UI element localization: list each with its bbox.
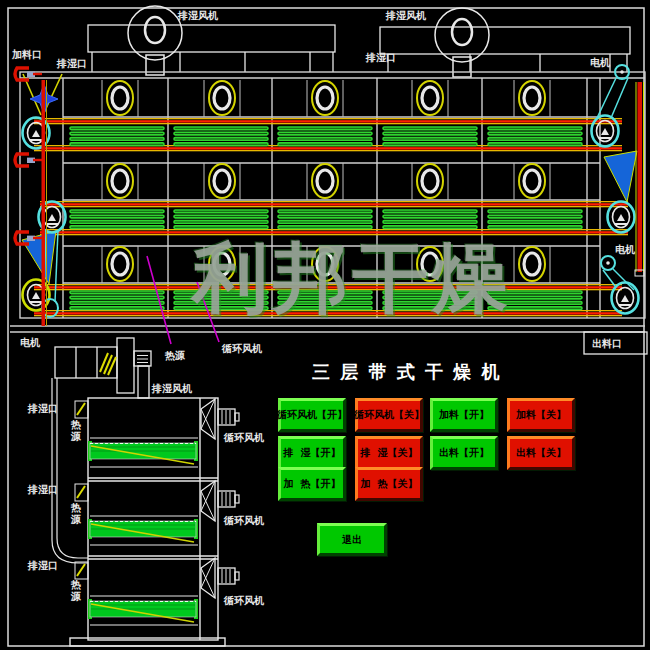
- feed-port-label: 加料口: [11, 49, 42, 60]
- side-heat-source-2b: 源: [70, 514, 81, 525]
- motor-bottom-left-label: 电机: [20, 337, 41, 348]
- side-circ-fan-label-2: 循环风机: [223, 515, 265, 526]
- motor-top-right-label: 电机: [590, 57, 611, 68]
- side-vent-port-label-1: 排湿口: [27, 403, 58, 414]
- dryer-top-view: 加料口 排湿口 排湿口 排湿风机 排湿风机 电机 电机 电机 出料口 热源 循环…: [10, 6, 647, 361]
- discharge-port-label: 出料口: [592, 338, 622, 349]
- vent-fan-left-label: 排湿风机: [177, 10, 219, 21]
- side-vent-port-label-2: 排湿口: [27, 484, 58, 495]
- feed-off-button[interactable]: 加料【关】: [507, 398, 575, 432]
- heat-source-pointer-label: 热源: [164, 350, 185, 361]
- exhaust-fan-icon-right: [435, 8, 489, 77]
- roof-duct-left: [88, 25, 335, 72]
- exhaust-fan-icon-left: [128, 6, 182, 75]
- side-belt-3: [88, 596, 198, 625]
- side-belt-1: [88, 438, 198, 467]
- side-heat-source-1b: 源: [70, 431, 81, 442]
- feed-on-button[interactable]: 加料【开】: [430, 398, 498, 432]
- exit-button[interactable]: 退出: [317, 523, 387, 556]
- dehumidify-on-button[interactable]: 排 湿【开】: [278, 436, 346, 470]
- side-vent-fan-label: 排湿风机: [151, 383, 193, 394]
- side-heat-source-3b: 源: [70, 591, 81, 602]
- side-vent-port-label-3: 排湿口: [27, 560, 58, 571]
- circulation-fan-off-button[interactable]: 循环风机【关】: [355, 398, 423, 432]
- side-heat-source-1a: 热: [70, 419, 81, 430]
- circulation-fan-icons: [107, 81, 545, 281]
- heating-on-button[interactable]: 加 热【开】: [278, 467, 346, 501]
- side-circ-fan-label-1: 循环风机: [223, 432, 265, 443]
- side-heat-source-3a: 热: [70, 579, 81, 590]
- discharge-on-button[interactable]: 出料【开】: [430, 436, 498, 470]
- motor-mid-right-label: 电机: [615, 244, 636, 255]
- side-belt-2: [88, 516, 198, 545]
- pointer-lines: [147, 256, 219, 344]
- hmi-screen: 加料口 排湿口 排湿口 排湿风机 排湿风机 电机 电机 电机 出料口 热源 循环…: [0, 0, 650, 650]
- dehumidify-off-button[interactable]: 排 湿【关】: [355, 436, 423, 470]
- vent-port-left-label: 排湿口: [56, 58, 87, 69]
- dryer-side-view: 排湿风机 排湿口 排湿口 排湿口 热 源 热 源 热 源 循环风机 循环风机 循…: [27, 338, 265, 646]
- heating-off-button[interactable]: 加 热【关】: [355, 467, 423, 501]
- vent-fan-right-label: 排湿风机: [385, 10, 427, 21]
- discharge-off-button[interactable]: 出料【关】: [507, 436, 575, 470]
- panel-title: 三 层 带 式 干 燥 机: [312, 360, 522, 384]
- vent-port-mid-label: 排湿口: [365, 52, 396, 63]
- side-circ-fan-label-3: 循环风机: [223, 595, 265, 606]
- side-circ-fan-3: [201, 558, 239, 598]
- side-top-assembly: [55, 338, 151, 398]
- circulation-fan-pointer-label: 循环风机: [221, 343, 263, 354]
- side-heat-source-2a: 热: [70, 502, 81, 513]
- circulation-fan-on-button[interactable]: 循环风机【开】: [278, 398, 346, 432]
- hatch-marks: [100, 353, 116, 375]
- chute-right: [604, 151, 637, 202]
- heater-slats: [70, 127, 582, 310]
